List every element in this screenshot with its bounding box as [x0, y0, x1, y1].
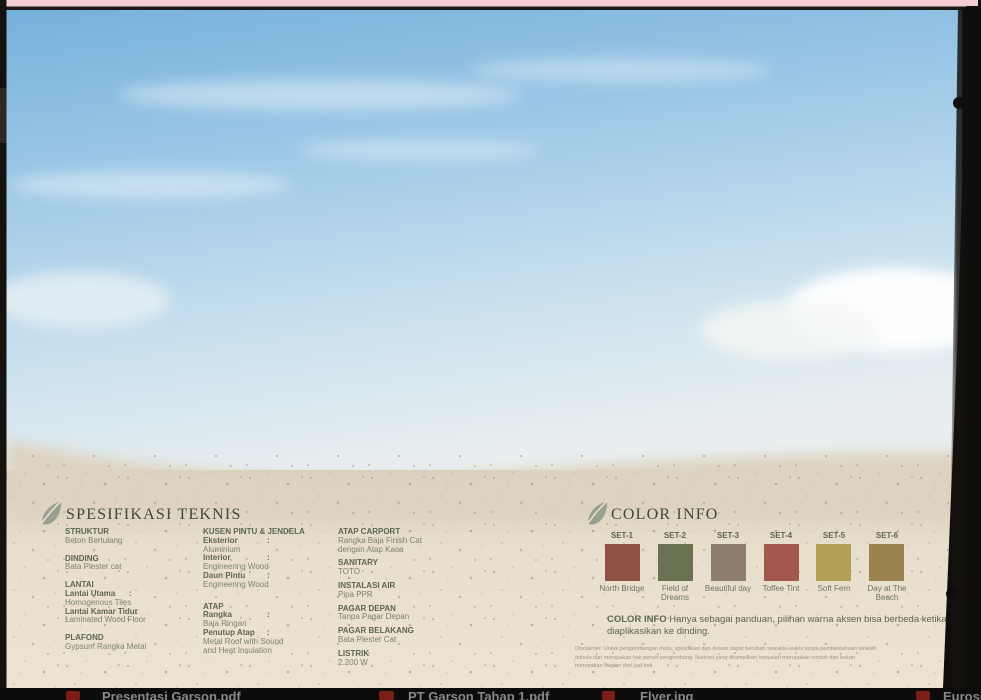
svg-text:Presentasi Garson.pdf: Presentasi Garson.pdf: [102, 689, 241, 700]
svg-text:Eurosud 3: Eurosud 3: [943, 689, 981, 700]
svg-text:Flyer.jpg: Flyer.jpg: [640, 689, 694, 700]
svg-text:PT Garson Tahap 1.pdf: PT Garson Tahap 1.pdf: [408, 689, 550, 700]
